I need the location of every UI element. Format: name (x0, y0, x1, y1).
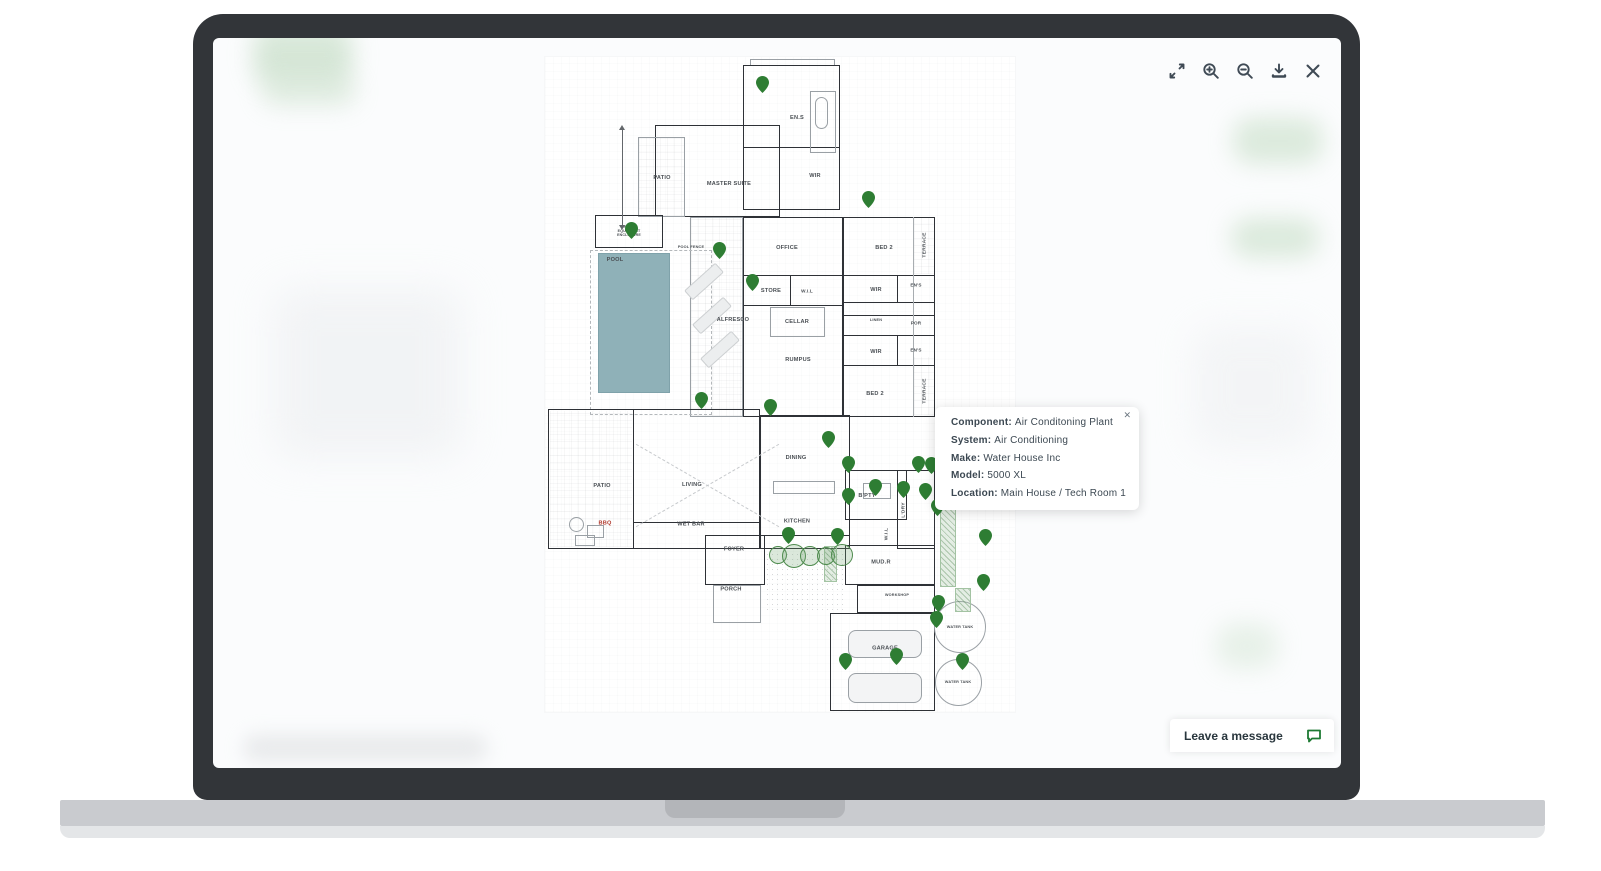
room-label: BBQ (598, 520, 611, 526)
bbq (569, 517, 584, 532)
room-label: BED 2 (866, 390, 884, 396)
room-label: LINEN (870, 318, 882, 322)
wall-segment (633, 409, 634, 549)
room-label: W.I.L (801, 288, 813, 293)
room-label: MASTER SUITE (707, 180, 751, 186)
room-label: WIR (870, 286, 882, 292)
pool-fence (590, 250, 712, 415)
wall-segment (790, 275, 791, 305)
map-pin[interactable] (897, 481, 910, 498)
room-label: EN.S (790, 114, 804, 120)
room-label: POOL FENCE (678, 245, 704, 249)
tooltip-field: Make: Water House Inc (951, 454, 1127, 465)
map-pin[interactable] (890, 648, 903, 665)
wall-segment (619, 125, 625, 130)
tooltip-field: System: Air Conditioning (951, 436, 1127, 447)
blurred-footer-blob (243, 734, 488, 762)
map-pin[interactable] (822, 431, 835, 448)
room-label: WIR (809, 172, 821, 178)
blurred-button-blob (1216, 623, 1278, 669)
room-label: KITCHEN (784, 518, 810, 524)
blurred-panel-blob (273, 288, 463, 458)
room-label: WATER TANK (947, 625, 973, 629)
room-label: L'DRY (900, 502, 906, 517)
tree-circle (831, 544, 853, 566)
laptop-hinge-notch (665, 800, 845, 818)
room-label: PATIO (593, 482, 610, 488)
foyer (705, 535, 765, 585)
blurred-button-blob (1231, 218, 1319, 258)
room-label: MUD.R (871, 559, 890, 565)
wall-segment (843, 275, 935, 276)
download-icon[interactable] (1270, 62, 1288, 80)
room-label: WORKSHOP (885, 593, 909, 597)
wall-segment (575, 535, 595, 546)
workshop (857, 585, 935, 613)
car (848, 673, 922, 703)
room-label: OFFICE (776, 244, 798, 250)
room-label: POR (911, 320, 922, 325)
map-pin[interactable] (713, 242, 726, 259)
floor-plan-sheet: EN.SWIRPATIOMASTER SUITEPOOL EQUIPMENT E… (545, 57, 1015, 712)
blurred-logo-blob (261, 76, 356, 106)
room-label: RUMPUS (785, 356, 811, 362)
map-pin[interactable] (930, 611, 943, 628)
map-pin[interactable] (842, 488, 855, 505)
map-pin[interactable] (831, 528, 844, 545)
laptop-screen: EN.SWIRPATIOMASTER SUITEPOOL EQUIPMENT E… (213, 38, 1341, 768)
room-label: PATIO (653, 174, 670, 180)
map-pin[interactable] (932, 595, 945, 612)
map-pin[interactable] (842, 456, 855, 473)
room-label: PORCH (720, 586, 741, 592)
tooltip-field: Location: Main House / Tech Room 1 (951, 489, 1127, 500)
room-label: FOYER (724, 546, 744, 552)
bathtub (815, 97, 828, 129)
room-label: EN'S (910, 282, 921, 287)
room-label: WIR (870, 348, 882, 354)
map-pin[interactable] (782, 527, 795, 544)
map-pin[interactable] (695, 392, 708, 409)
room-label: WET BAR (677, 521, 705, 527)
expand-icon[interactable] (1168, 62, 1186, 80)
room-label: LIVING (682, 481, 702, 487)
map-pin[interactable] (746, 274, 759, 291)
dimension-line (622, 128, 623, 228)
tooltip-close-icon[interactable]: ✕ (1123, 411, 1131, 420)
zoom-in-icon[interactable] (1202, 62, 1220, 80)
map-pin[interactable] (862, 191, 875, 208)
wall-segment (897, 335, 898, 365)
blurred-button-blob (1233, 118, 1323, 164)
chat-label: Leave a message (1184, 729, 1283, 743)
chat-widget[interactable]: Leave a message (1170, 719, 1334, 752)
map-pin[interactable] (977, 574, 990, 591)
map-pin[interactable] (764, 399, 777, 416)
kitchen-island (773, 481, 835, 494)
room-label: ALFRESCO (717, 316, 749, 322)
room-label: TERRACE (921, 232, 927, 257)
laptop-base-lip (60, 826, 1545, 838)
room-label: DINING (786, 454, 807, 460)
tooltip-field: Component: Air Conditoning Plant (951, 418, 1127, 429)
map-pin[interactable] (625, 222, 638, 239)
map-pin[interactable] (919, 483, 932, 500)
garden-bed (955, 588, 971, 612)
tooltip-field: Model: 5000 XL (951, 471, 1127, 482)
map-pin[interactable] (979, 529, 992, 546)
room-label: WATER TANK (945, 680, 971, 684)
map-pin[interactable] (839, 653, 852, 670)
wall-segment (743, 305, 843, 306)
room-label: EN'S (910, 347, 921, 352)
room-label: W.I.L (883, 528, 889, 541)
room-label: POOL (607, 256, 624, 262)
blurred-panel-blob (1193, 328, 1313, 448)
zoom-out-icon[interactable] (1236, 62, 1254, 80)
map-pin[interactable] (956, 653, 969, 670)
room-label: TERRACE (921, 378, 927, 403)
wall-segment (843, 302, 935, 303)
viewer-toolbar (1168, 62, 1322, 80)
room-label: STORE (761, 287, 781, 293)
component-tooltip: ✕ Component: Air Conditoning PlantSystem… (935, 407, 1139, 510)
wall-segment (897, 275, 898, 302)
room-label: CELLAR (785, 318, 809, 324)
blurred-logo-blob (253, 38, 353, 84)
room-label: BED 2 (875, 244, 893, 250)
map-pin[interactable] (869, 479, 882, 496)
chat-bubble-icon (1306, 728, 1322, 743)
close-icon[interactable] (1304, 62, 1322, 80)
map-pin[interactable] (912, 456, 925, 473)
map-pin[interactable] (756, 76, 769, 93)
wall-segment (843, 335, 935, 336)
wall-segment (843, 315, 935, 316)
